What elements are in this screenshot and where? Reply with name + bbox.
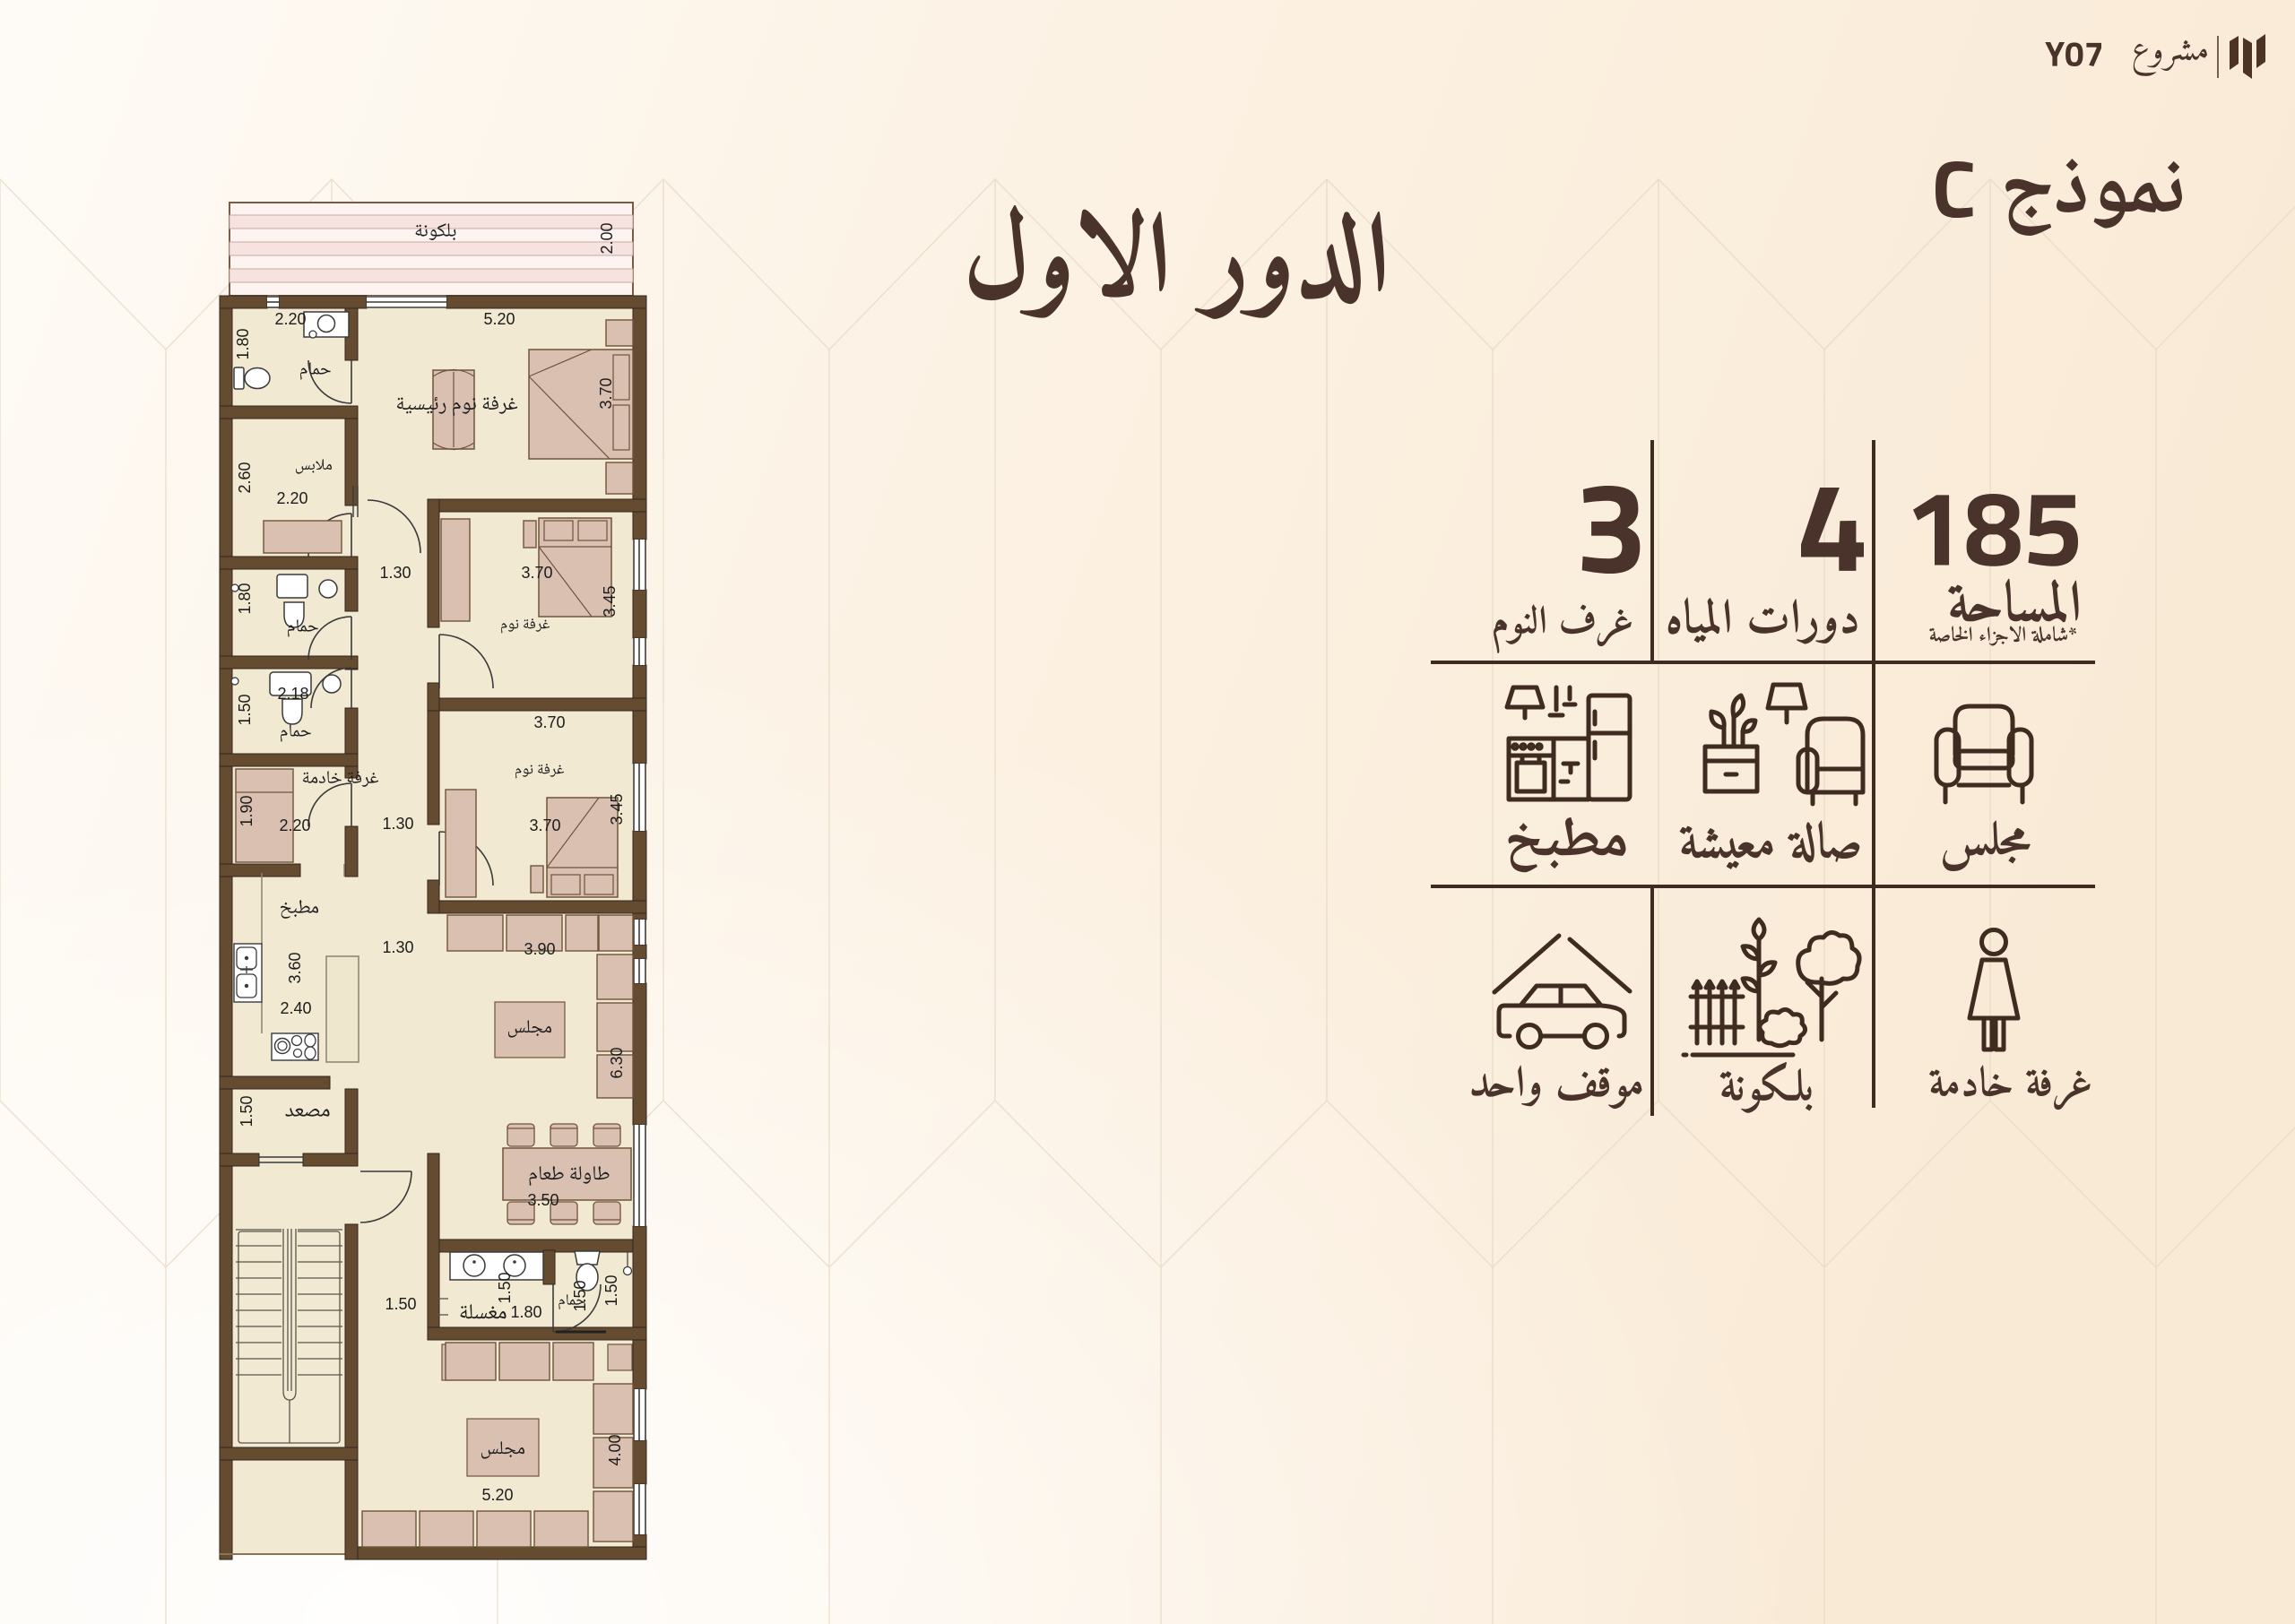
svg-text:1.50: 1.50 (385, 1295, 416, 1313)
svg-text:1.90: 1.90 (238, 795, 255, 826)
svg-text:1.30: 1.30 (379, 564, 411, 582)
svg-text:1.50: 1.50 (236, 694, 254, 725)
svg-text:1.80: 1.80 (510, 1303, 541, 1321)
svg-text:3.70: 3.70 (521, 564, 552, 582)
svg-text:1.30: 1.30 (382, 938, 413, 956)
svg-text:5.20: 5.20 (483, 310, 515, 328)
svg-text:3.45: 3.45 (608, 793, 626, 825)
svg-text:1.50: 1.50 (238, 1095, 255, 1127)
svg-text:2.18: 2.18 (277, 685, 308, 703)
svg-text:3.70: 3.70 (533, 713, 565, 731)
svg-text:2.00: 2.00 (598, 222, 616, 254)
svg-text:1.80: 1.80 (236, 583, 254, 614)
svg-text:1.50: 1.50 (602, 1274, 620, 1306)
svg-text:2.20: 2.20 (274, 310, 306, 328)
svg-text:1.30: 1.30 (382, 815, 413, 833)
svg-text:5.20: 5.20 (481, 1486, 513, 1504)
svg-text:3.50: 3.50 (527, 1191, 559, 1209)
svg-text:3.45: 3.45 (601, 585, 619, 617)
svg-text:3.90: 3.90 (524, 940, 555, 958)
svg-text:4.00: 4.00 (606, 1434, 624, 1465)
svg-text:3.60: 3.60 (286, 952, 304, 983)
svg-text:1.80: 1.80 (234, 328, 252, 359)
svg-text:2.20: 2.20 (276, 489, 307, 507)
svg-text:2.20: 2.20 (279, 816, 310, 834)
svg-text:6.30: 6.30 (608, 1047, 626, 1078)
svg-text:1.50: 1.50 (571, 1280, 589, 1311)
svg-text:1.50: 1.50 (496, 1272, 514, 1303)
svg-text:2.40: 2.40 (280, 999, 311, 1017)
svg-text:3.70: 3.70 (597, 377, 615, 409)
svg-text:2.60: 2.60 (236, 462, 254, 493)
svg-text:3.70: 3.70 (529, 816, 560, 834)
